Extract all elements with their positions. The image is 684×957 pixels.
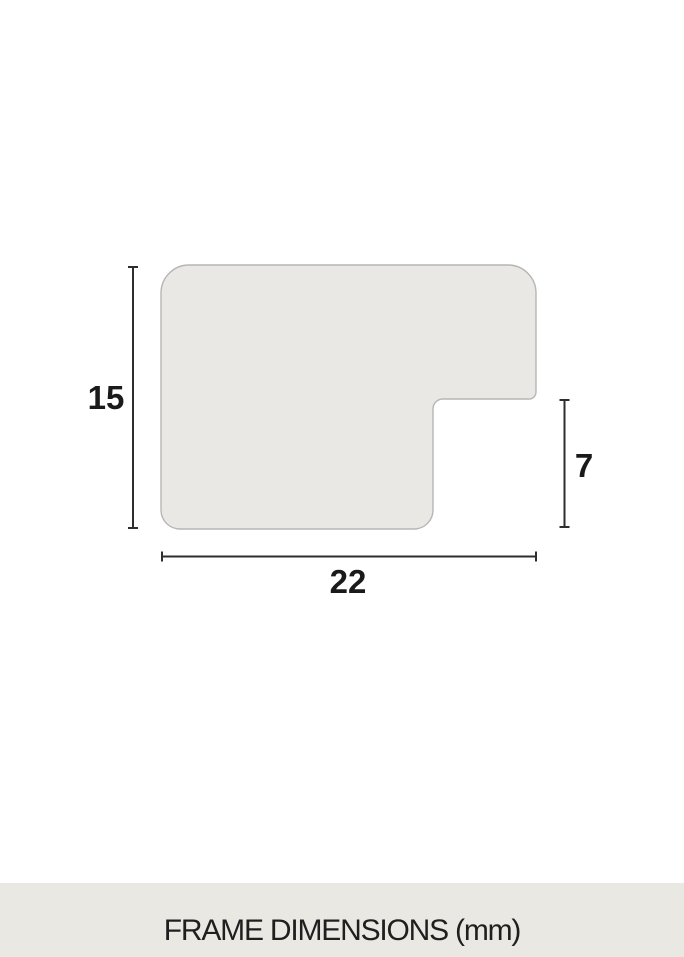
svg-text:15: 15 — [88, 379, 125, 416]
svg-text:22: 22 — [330, 563, 367, 600]
svg-text:7: 7 — [575, 447, 593, 484]
